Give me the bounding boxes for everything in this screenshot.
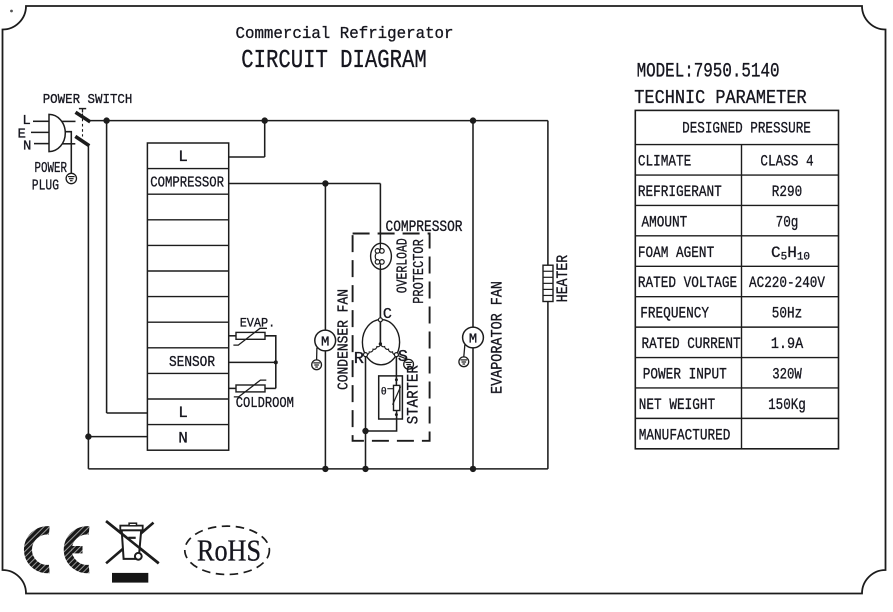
svg-text:POWER INPUT: POWER INPUT xyxy=(643,365,727,383)
svg-text:REFRIGERANT: REFRIGERANT xyxy=(638,183,722,201)
svg-text:AMOUNT: AMOUNT xyxy=(642,213,688,231)
svg-text:SENSOR: SENSOR xyxy=(169,354,215,371)
svg-text:PROTECTOR: PROTECTOR xyxy=(411,239,428,304)
svg-text:N: N xyxy=(23,138,31,154)
svg-text:RATED CURRENT: RATED CURRENT xyxy=(642,335,741,353)
svg-text:MODEL:7950.5140: MODEL:7950.5140 xyxy=(637,61,780,84)
svg-text:CONDENSER FAN: CONDENSER FAN xyxy=(335,289,352,390)
svg-text:EVAPORATOR FAN: EVAPORATOR FAN xyxy=(488,281,506,394)
svg-text:RoHS: RoHS xyxy=(197,532,261,567)
svg-text:RATED VOLTAGE: RATED VOLTAGE xyxy=(638,274,737,292)
svg-text:N: N xyxy=(178,430,188,448)
svg-text:C: C xyxy=(383,306,392,323)
svg-text:θ: θ xyxy=(381,386,387,398)
svg-text:EVAP.: EVAP. xyxy=(240,315,276,330)
svg-text:NET WEIGHT: NET WEIGHT xyxy=(639,396,715,414)
svg-text:150Kg: 150Kg xyxy=(768,396,806,414)
svg-text:MANUFACTURED: MANUFACTURED xyxy=(639,426,731,444)
svg-text:1.9A: 1.9A xyxy=(771,335,804,353)
svg-text:M: M xyxy=(469,332,477,348)
svg-text:CIRCUIT DIAGRAM: CIRCUIT DIAGRAM xyxy=(241,45,427,75)
svg-text:FREQUENCY: FREQUENCY xyxy=(640,305,709,323)
svg-text:TECHNIC PARAMETER: TECHNIC PARAMETER xyxy=(634,87,806,109)
svg-text:Commercial Refrigerator: Commercial Refrigerator xyxy=(236,25,454,44)
svg-text:HEATER: HEATER xyxy=(554,254,572,302)
svg-text:POWER: POWER xyxy=(35,160,68,177)
svg-text:COMPRESSOR: COMPRESSOR xyxy=(386,218,463,236)
svg-text:DESIGNED PRESSURE: DESIGNED PRESSURE xyxy=(682,120,811,138)
svg-text:AC220-240V: AC220-240V xyxy=(749,274,825,292)
svg-text:OVERLOAD: OVERLOAD xyxy=(394,238,411,293)
svg-text:320W: 320W xyxy=(772,365,802,383)
svg-text:M: M xyxy=(321,335,329,351)
svg-text:50Hz: 50Hz xyxy=(772,305,802,323)
svg-text:R: R xyxy=(354,350,364,369)
svg-text:CLIMATE: CLIMATE xyxy=(638,153,691,171)
svg-text:PLUG: PLUG xyxy=(32,177,59,194)
svg-text:CLASS 4: CLASS 4 xyxy=(760,153,813,171)
svg-text:FOAM AGENT: FOAM AGENT xyxy=(638,244,714,262)
svg-text:POWER SWITCH: POWER SWITCH xyxy=(43,92,133,108)
svg-text:STARTER: STARTER xyxy=(405,365,423,424)
svg-text:R290: R290 xyxy=(772,183,802,201)
svg-text:L: L xyxy=(178,148,188,166)
svg-text:70g: 70g xyxy=(776,213,799,231)
svg-text:L: L xyxy=(178,404,188,422)
svg-text:COLDROOM: COLDROOM xyxy=(236,395,294,412)
svg-text:COMPRESSOR: COMPRESSOR xyxy=(150,175,224,192)
